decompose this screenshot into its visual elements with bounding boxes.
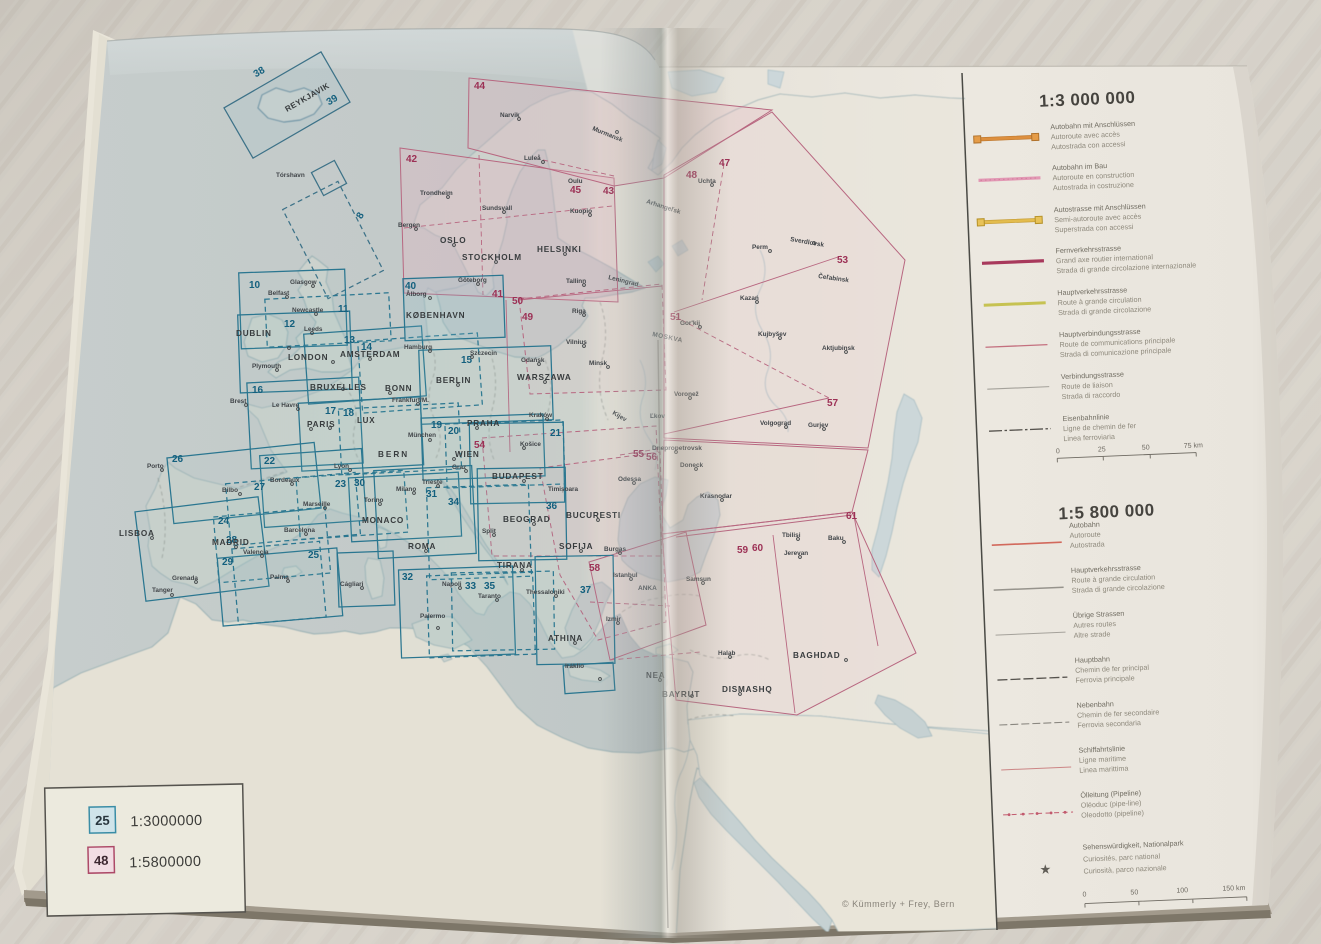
svg-text:12: 12 xyxy=(284,319,296,330)
svg-text:DUBLIN: DUBLIN xyxy=(236,329,272,338)
svg-text:LISBOA: LISBOA xyxy=(119,529,155,538)
svg-text:24: 24 xyxy=(218,516,230,527)
svg-text:25: 25 xyxy=(95,813,110,828)
svg-text:LUX: LUX xyxy=(357,416,375,425)
svg-text:44: 44 xyxy=(474,81,486,92)
svg-text:29: 29 xyxy=(222,557,234,568)
svg-text:LONDON: LONDON xyxy=(288,353,328,362)
svg-text:ROMA: ROMA xyxy=(408,542,436,551)
svg-text:50: 50 xyxy=(1130,889,1138,896)
svg-text:Autres routes: Autres routes xyxy=(1073,619,1116,630)
svg-text:0: 0 xyxy=(1056,448,1060,455)
svg-text:Sundsvall: Sundsvall xyxy=(482,205,512,212)
svg-text:21: 21 xyxy=(550,428,562,439)
svg-text:Szczecin: Szczecin xyxy=(470,350,497,357)
svg-text:MONACO: MONACO xyxy=(362,516,404,525)
svg-text:50: 50 xyxy=(512,296,524,307)
svg-text:37: 37 xyxy=(580,585,592,596)
svg-text:Kraków: Kraków xyxy=(529,412,552,419)
svg-text:1:5800000: 1:5800000 xyxy=(129,854,201,872)
svg-text:150 km: 150 km xyxy=(1222,885,1245,893)
svg-text:75 km: 75 km xyxy=(1184,442,1204,450)
svg-text:11: 11 xyxy=(338,304,349,315)
svg-text:19: 19 xyxy=(431,420,443,431)
svg-text:Grenada: Grenada xyxy=(172,575,198,582)
svg-text:Lyon: Lyon xyxy=(334,463,349,470)
svg-text:1:3000000: 1:3000000 xyxy=(130,813,202,831)
svg-text:34: 34 xyxy=(448,497,460,508)
svg-text:32: 32 xyxy=(402,572,414,583)
svg-text:© Kümmerly + Frey, Bern: © Kümmerly + Frey, Bern xyxy=(842,899,955,909)
svg-text:31: 31 xyxy=(426,489,438,500)
svg-text:Tórshavn: Tórshavn xyxy=(276,172,305,179)
svg-text:61: 61 xyxy=(846,511,858,522)
svg-text:Autoroute: Autoroute xyxy=(1069,530,1101,540)
svg-text:Marseille: Marseille xyxy=(303,501,331,508)
svg-text:45: 45 xyxy=(570,185,582,196)
svg-text:WIEN: WIEN xyxy=(455,450,480,459)
svg-text:25: 25 xyxy=(1098,446,1106,453)
svg-text:Trieste: Trieste xyxy=(422,479,443,486)
svg-text:Timișoara: Timișoara xyxy=(548,486,579,493)
svg-text:BAGHDAD: BAGHDAD xyxy=(793,651,840,660)
svg-text:Altre strade: Altre strade xyxy=(1073,629,1110,640)
svg-text:Hamburg: Hamburg xyxy=(404,344,432,351)
svg-text:0: 0 xyxy=(1082,892,1086,899)
svg-text:36: 36 xyxy=(546,501,558,512)
svg-text:13: 13 xyxy=(344,335,356,346)
svg-text:58: 58 xyxy=(589,563,601,574)
svg-text:SOFIJA: SOFIJA xyxy=(559,542,593,551)
svg-text:41: 41 xyxy=(492,289,504,300)
svg-text:Barcelona: Barcelona xyxy=(284,527,315,534)
svg-text:50: 50 xyxy=(1142,444,1150,451)
svg-text:30: 30 xyxy=(354,478,366,489)
svg-text:Cágliari: Cágliari xyxy=(340,581,364,588)
svg-text:48: 48 xyxy=(94,853,109,868)
svg-text:26: 26 xyxy=(172,454,184,465)
svg-text:Valencia: Valencia xyxy=(243,549,269,556)
svg-text:Frankfurt/M.: Frankfurt/M. xyxy=(392,397,429,404)
svg-text:Oulu: Oulu xyxy=(568,178,583,185)
svg-text:25: 25 xyxy=(308,550,320,561)
svg-text:Bilbo: Bilbo xyxy=(222,487,238,494)
svg-text:Luleå: Luleå xyxy=(524,154,541,162)
svg-text:Newcastle: Newcastle xyxy=(292,307,324,314)
svg-text:18: 18 xyxy=(343,408,355,419)
svg-text:17: 17 xyxy=(325,406,337,417)
svg-text:Baku: Baku xyxy=(828,535,844,542)
svg-text:35: 35 xyxy=(484,581,496,592)
svg-text:TIRANA: TIRANA xyxy=(497,561,533,570)
svg-text:Graz: Graz xyxy=(452,464,466,471)
svg-text:Narvik: Narvik xyxy=(500,112,520,119)
svg-text:KØBENHAVN: KØBENHAVN xyxy=(406,311,465,320)
svg-text:HELSINKI: HELSINKI xyxy=(537,245,582,254)
svg-text:BUDAPEST: BUDAPEST xyxy=(492,472,543,481)
svg-text:Ålborg: Ålborg xyxy=(406,289,427,298)
svg-text:Palermo: Palermo xyxy=(420,613,445,620)
svg-text:Gdańsk: Gdańsk xyxy=(521,357,545,364)
svg-text:20: 20 xyxy=(448,426,460,437)
svg-text:59: 59 xyxy=(737,545,749,556)
svg-text:57: 57 xyxy=(827,398,839,409)
svg-text:Göteborg: Göteborg xyxy=(458,277,487,284)
svg-text:49: 49 xyxy=(522,312,534,323)
svg-text:Tanger: Tanger xyxy=(152,587,173,594)
svg-text:22: 22 xyxy=(264,456,276,467)
svg-text:BERN: BERN xyxy=(378,450,409,459)
svg-text:Autobahn: Autobahn xyxy=(1069,520,1100,530)
svg-text:BEOGRAD: BEOGRAD xyxy=(503,515,550,524)
svg-text:Gurjev: Gurjev xyxy=(808,422,829,429)
svg-text:München: München xyxy=(408,432,436,439)
svg-text:Perm: Perm xyxy=(752,244,768,251)
svg-text:1:3 000 000: 1:3 000 000 xyxy=(1039,88,1136,111)
svg-text:42: 42 xyxy=(406,154,418,165)
svg-text:16: 16 xyxy=(252,385,264,396)
svg-text:10: 10 xyxy=(249,280,261,291)
svg-text:Palma: Palma xyxy=(270,574,289,581)
svg-text:Nebenbahn: Nebenbahn xyxy=(1076,699,1114,710)
svg-text:Hauptbahn: Hauptbahn xyxy=(1075,654,1111,664)
svg-text:Autostrada: Autostrada xyxy=(1070,539,1105,549)
svg-text:Aktjubinsk: Aktjubinsk xyxy=(822,345,855,352)
svg-text:Jerevan: Jerevan xyxy=(784,550,808,557)
svg-text:60: 60 xyxy=(752,543,764,554)
svg-text:STOCKHOLM: STOCKHOLM xyxy=(462,253,522,262)
svg-text:23: 23 xyxy=(335,479,347,490)
svg-text:ATHINA: ATHINA xyxy=(548,634,583,643)
svg-text:PRAHA: PRAHA xyxy=(467,419,500,428)
svg-text:27: 27 xyxy=(254,482,266,493)
svg-text:Le Havre: Le Havre xyxy=(272,402,299,409)
svg-text:33: 33 xyxy=(465,581,477,592)
svg-text:Iráklio: Iráklio xyxy=(565,663,584,670)
svg-text:100: 100 xyxy=(1176,887,1188,894)
svg-text:Bordeaux: Bordeaux xyxy=(270,477,300,484)
svg-text:MADRID: MADRID xyxy=(212,538,250,547)
svg-text:Kujbyšev: Kujbyšev xyxy=(758,331,787,338)
svg-text:BERLIN: BERLIN xyxy=(436,376,471,385)
svg-text:Thessaloniki: Thessaloniki xyxy=(526,589,565,596)
svg-text:BRUXELLES: BRUXELLES xyxy=(310,383,367,392)
svg-text:53: 53 xyxy=(837,255,849,266)
